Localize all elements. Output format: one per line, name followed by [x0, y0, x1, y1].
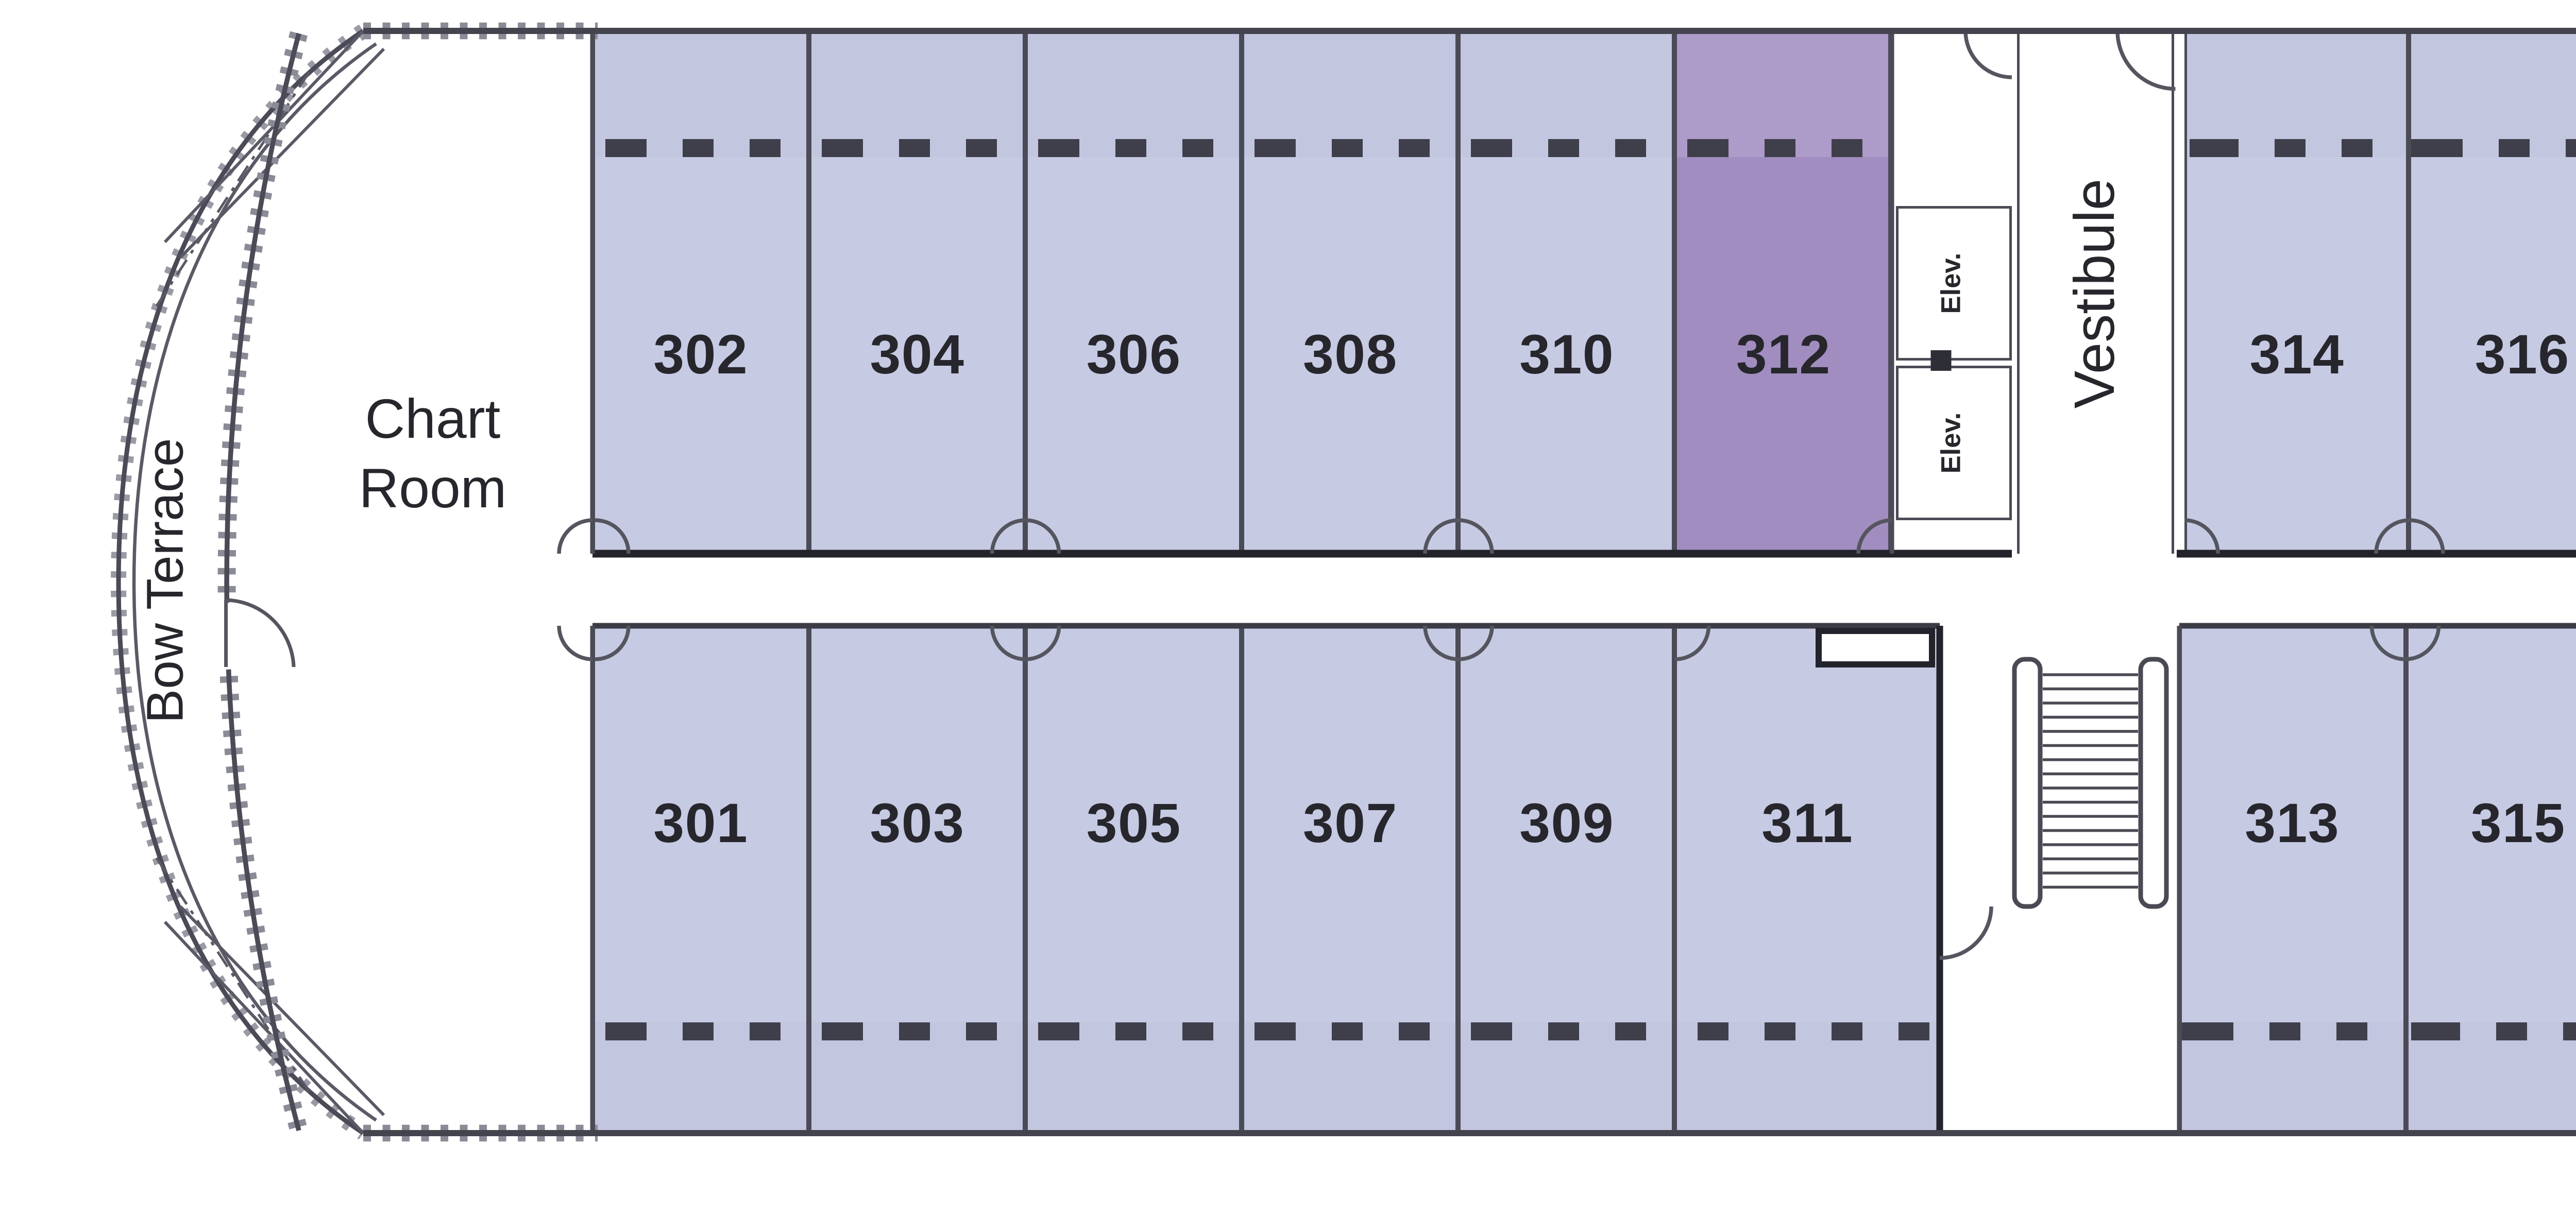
- elevator-bottom: Elev.: [1895, 366, 2011, 520]
- cabin-302[interactable]: 302: [592, 31, 809, 554]
- balcony-strip: [2182, 1040, 2402, 1133]
- balcony-strip: [2412, 31, 2576, 139]
- cabin-number: 314: [2187, 157, 2407, 554]
- balcony-strip: [1245, 31, 1456, 139]
- balcony-strip: [2408, 1040, 2576, 1133]
- cabin-number: 315: [2408, 626, 2576, 1022]
- ship-deck-3: 302 304 306 308 310 312 314 316 318 320 …: [0, 0, 2576, 1232]
- cabin-number: 313: [2182, 626, 2402, 1022]
- cabin-308[interactable]: 308: [1242, 31, 1459, 554]
- window-band: [1461, 1022, 1672, 1040]
- cabin-number: 308: [1245, 157, 1456, 554]
- window-band: [595, 139, 806, 157]
- elevator-top: Elev.: [1895, 206, 2011, 361]
- cabin-306[interactable]: 306: [1025, 31, 1242, 554]
- window-band: [1677, 139, 1889, 157]
- deck-plan: 302 304 306 308 310 312 314 316 318 320 …: [0, 0, 2576, 1232]
- window-band: [811, 139, 1023, 157]
- cabin-number: 307: [1245, 626, 1456, 1022]
- balcony-strip: [811, 31, 1023, 139]
- cabin-number: 305: [1028, 626, 1239, 1022]
- cabin-312[interactable]: 312: [1675, 31, 1891, 554]
- cabin-number: 316: [2412, 157, 2576, 554]
- cabin-301[interactable]: 301: [592, 626, 809, 1133]
- window-band: [1245, 1022, 1456, 1040]
- window-band: [2412, 139, 2576, 157]
- cabin-307[interactable]: 307: [1242, 626, 1459, 1133]
- midship-stairs-icon: [2014, 659, 2166, 906]
- cabin-315[interactable]: 315: [2405, 626, 2576, 1133]
- cabin-number: 303: [811, 626, 1023, 1022]
- cabin-314[interactable]: 314: [2184, 31, 2410, 554]
- window-band: [1677, 1022, 1937, 1040]
- window-band: [2187, 139, 2407, 157]
- window-band: [1028, 1022, 1239, 1040]
- window-band: [1245, 139, 1456, 157]
- balcony-strip: [1461, 31, 1672, 139]
- cabin-311[interactable]: 311: [1675, 626, 1939, 1133]
- cabin-number: 312: [1677, 157, 1889, 554]
- window-band: [1028, 139, 1239, 157]
- balcony-strip: [595, 1040, 806, 1133]
- cabin-number: 304: [811, 157, 1023, 554]
- chart-room-label: Chart Room: [299, 386, 567, 572]
- window-band: [2182, 1022, 2402, 1040]
- window-band: [811, 1022, 1023, 1040]
- cabin-number: 309: [1461, 626, 1672, 1022]
- elevator-label: Elev.: [1937, 253, 1968, 314]
- balcony-strip: [2187, 31, 2407, 139]
- balcony-strip: [1461, 1040, 1672, 1133]
- cabin-number: 302: [595, 157, 806, 554]
- cabin-313[interactable]: 313: [2179, 626, 2405, 1133]
- window-band: [1461, 139, 1672, 157]
- cabin-number: 310: [1461, 157, 1672, 554]
- balcony-strip: [1677, 1040, 1937, 1133]
- window-band: [595, 1022, 806, 1040]
- balcony-strip: [1028, 1040, 1239, 1133]
- chart-room-line1: Chart: [299, 386, 567, 455]
- cabin-305[interactable]: 305: [1025, 626, 1242, 1133]
- chart-room-line2: Room: [299, 455, 567, 524]
- cabin-310[interactable]: 310: [1459, 31, 1675, 554]
- window-band: [2408, 1022, 2576, 1040]
- balcony-strip: [811, 1040, 1023, 1133]
- cabin-number: 311: [1677, 626, 1937, 1022]
- balcony-strip: [1028, 31, 1239, 139]
- vestibule: Vestibule: [2016, 31, 2175, 554]
- elevator-label: Elev.: [1937, 413, 1968, 474]
- cabin-304[interactable]: 304: [809, 31, 1025, 554]
- vestibule-label: Vestibule: [2061, 177, 2128, 407]
- cabin-303[interactable]: 303: [809, 626, 1025, 1133]
- cabin-309[interactable]: 309: [1459, 626, 1675, 1133]
- cabin-316[interactable]: 316: [2410, 31, 2576, 554]
- cabin-number: 301: [595, 626, 806, 1022]
- cabin-number: 306: [1028, 157, 1239, 554]
- balcony-strip: [1245, 1040, 1456, 1133]
- balcony-strip: [1677, 31, 1889, 139]
- bow-terrace-label: Bow Terrace: [77, 232, 258, 927]
- balcony-strip: [595, 31, 806, 139]
